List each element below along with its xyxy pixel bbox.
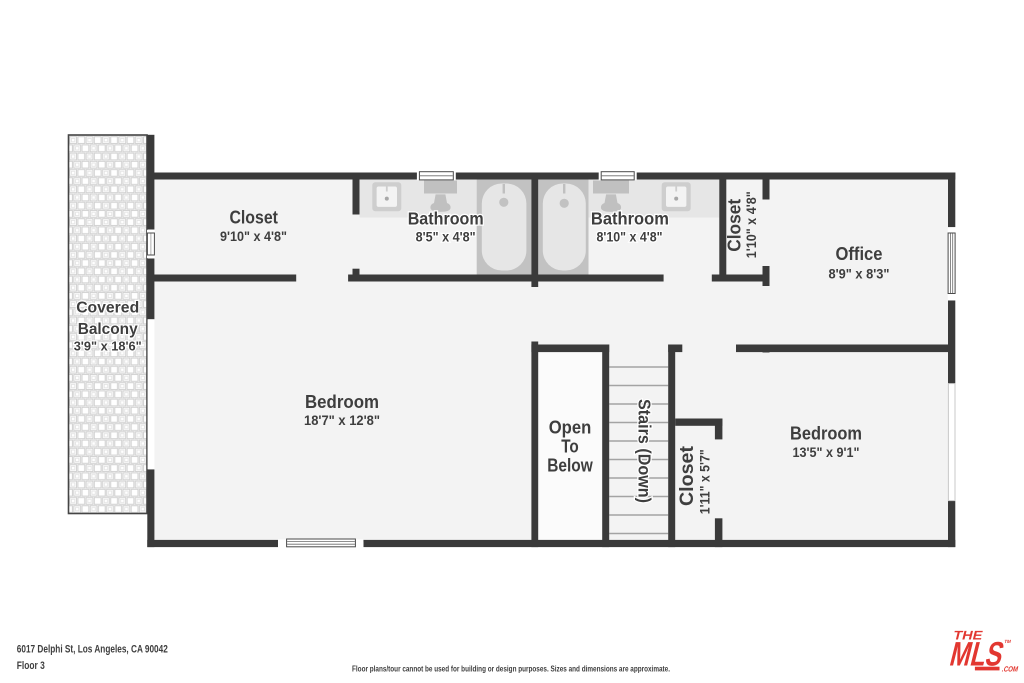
svg-text:8'10" x 4'8": 8'10" x 4'8" bbox=[597, 229, 663, 245]
svg-text:.COM: .COM bbox=[1001, 665, 1019, 674]
svg-text:6017 Delphi St, Los Angeles, C: 6017 Delphi St, Los Angeles, CA 90042 bbox=[17, 644, 168, 656]
svg-text:Bathroom: Bathroom bbox=[408, 208, 484, 228]
svg-text:8'5" x 4'8": 8'5" x 4'8" bbox=[416, 229, 476, 245]
svg-text:Closet: Closet bbox=[229, 207, 278, 227]
svg-text:To: To bbox=[561, 435, 579, 456]
svg-text:18'7" x 12'8": 18'7" x 12'8" bbox=[304, 412, 380, 428]
svg-text:Bedroom: Bedroom bbox=[790, 422, 862, 443]
svg-text:Bathroom: Bathroom bbox=[591, 208, 669, 228]
svg-text:Bedroom: Bedroom bbox=[305, 391, 379, 412]
svg-text:Stairs (Down): Stairs (Down) bbox=[634, 399, 654, 503]
svg-text:Covered: Covered bbox=[76, 299, 139, 316]
svg-text:Balcony: Balcony bbox=[78, 321, 138, 338]
svg-text:3'9" x 18'6": 3'9" x 18'6" bbox=[74, 339, 142, 354]
svg-text:Office: Office bbox=[836, 244, 883, 264]
svg-text:13'5" x 9'1": 13'5" x 9'1" bbox=[793, 444, 860, 460]
svg-text:1'10" x 4'8": 1'10" x 4'8" bbox=[744, 191, 759, 258]
svg-text:1'11" x 5'7": 1'11" x 5'7" bbox=[698, 449, 713, 514]
svg-text:8'9" x 8'3": 8'9" x 8'3" bbox=[829, 266, 890, 282]
svg-text:Floor plans/tour cannot be use: Floor plans/tour cannot be used for buil… bbox=[352, 663, 670, 673]
svg-text:Closet: Closet bbox=[677, 445, 698, 506]
svg-text:9'10" x 4'8": 9'10" x 4'8" bbox=[220, 228, 287, 244]
svg-text:Closet: Closet bbox=[725, 199, 745, 252]
svg-text:Below: Below bbox=[547, 455, 593, 476]
svg-text:Open: Open bbox=[549, 416, 592, 437]
svg-text:Floor 3: Floor 3 bbox=[17, 660, 45, 672]
